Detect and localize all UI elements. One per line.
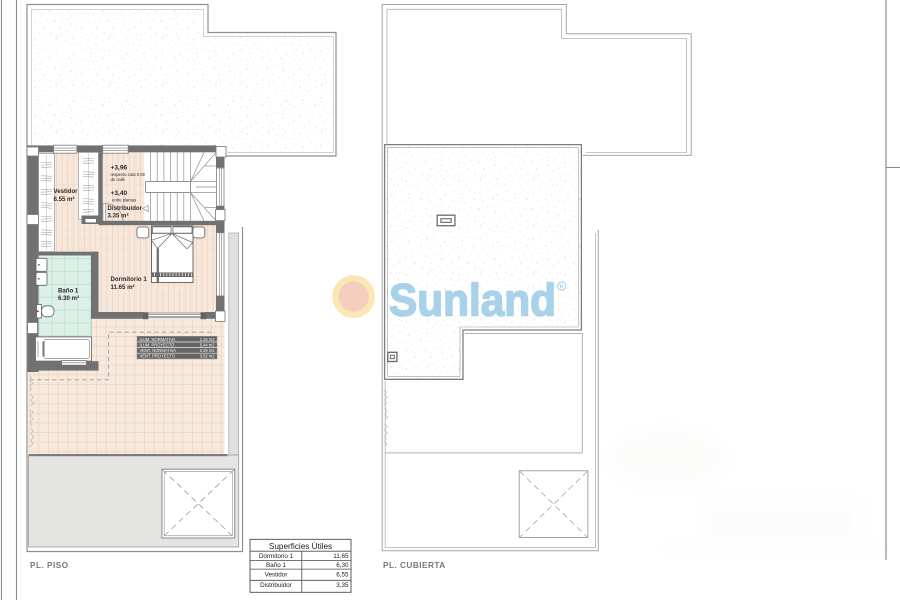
- svg-text:ILUM. NORMATIVA: ILUM. NORMATIVA: [140, 337, 176, 342]
- svg-text:Dormitorio 1: Dormitorio 1: [259, 553, 294, 560]
- svg-text:6.30 m²: 6.30 m²: [58, 295, 79, 302]
- svg-text:PL. PISO: PL. PISO: [30, 561, 69, 570]
- svg-text:VENT. NORMATIVA: VENT. NORMATIVA: [140, 348, 177, 353]
- svg-text:Vestidor: Vestidor: [265, 572, 288, 579]
- svg-text:R: R: [560, 284, 564, 290]
- svg-text:Superficies Útiles: Superficies Útiles: [269, 541, 332, 551]
- svg-text:5.44 m2: 5.44 m2: [200, 342, 216, 347]
- svg-text:Baño 1: Baño 1: [266, 562, 286, 569]
- svg-text:Sunland: Sunland: [389, 275, 556, 326]
- svg-text:Baño 1: Baño 1: [58, 288, 79, 295]
- svg-text:6.55 m²: 6.55 m²: [54, 196, 75, 203]
- svg-text:6,30: 6,30: [336, 562, 349, 569]
- svg-text:3.52 m2: 3.52 m2: [200, 354, 216, 359]
- svg-text:11,65: 11,65: [333, 553, 349, 560]
- svg-text:+3,96: +3,96: [111, 165, 128, 172]
- svg-text:3.35 m²: 3.35 m²: [108, 213, 129, 220]
- svg-text:6,55: 6,55: [336, 572, 349, 579]
- svg-text:1.16 m2: 1.16 m2: [200, 337, 216, 342]
- svg-text:Vestidor: Vestidor: [54, 188, 79, 195]
- svg-text:Distribuidor: Distribuidor: [260, 582, 292, 589]
- svg-text:Dormitorio 1: Dormitorio 1: [111, 276, 148, 283]
- svg-text:PL. CUBIERTA: PL. CUBIERTA: [383, 561, 446, 570]
- svg-text:0.39 m2: 0.39 m2: [200, 348, 216, 353]
- svg-text:ILUM. PROYECTO: ILUM. PROYECTO: [140, 342, 175, 347]
- svg-text:11.65 m²: 11.65 m²: [111, 284, 135, 291]
- svg-text:VENT. PROYECTO: VENT. PROYECTO: [140, 354, 176, 359]
- svg-text:entre plantas: entre plantas: [112, 197, 136, 202]
- svg-text:de calle: de calle: [111, 177, 126, 182]
- svg-text:+3,40: +3,40: [111, 190, 128, 197]
- svg-text:Distribuidor: Distribuidor: [108, 205, 143, 212]
- svg-text:3,35: 3,35: [336, 582, 349, 589]
